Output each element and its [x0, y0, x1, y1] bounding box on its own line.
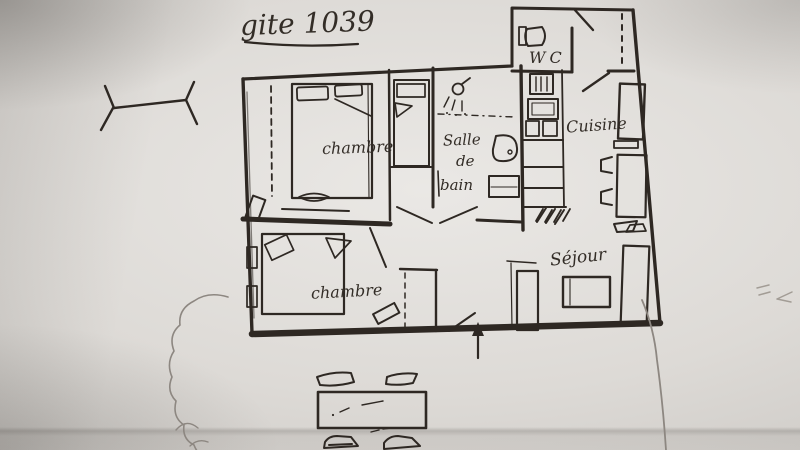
door-swing-icon: [574, 9, 593, 30]
door-swing-icon: [397, 207, 432, 223]
wall-top: [243, 66, 512, 79]
hallway: [397, 207, 521, 223]
bush-icon: [176, 423, 208, 446]
room-chambre-bottom: chambre: [247, 228, 437, 331]
patio-furniture: [317, 373, 426, 450]
door-swing-icon: [440, 207, 477, 223]
wall-bottom: [252, 323, 660, 334]
patio-chair-icon: [384, 436, 420, 449]
patio-chair-icon: [324, 436, 358, 448]
chambre-bottom-label: chambre: [311, 280, 383, 303]
wall-segment: [400, 269, 437, 270]
chair-icon: [601, 189, 612, 205]
branch-mark-icon: [101, 82, 197, 130]
wall-tick: [511, 263, 512, 328]
single-bed-icon: [390, 80, 431, 167]
patio-table-icon: [318, 392, 426, 428]
bain-label-2: de: [456, 152, 475, 170]
floor-plan-photo: gite 1039 WC: [0, 0, 800, 450]
bed-icon: [262, 234, 351, 314]
room-sejour: Séjour: [507, 208, 649, 330]
wall-tick: [438, 171, 439, 196]
sejour-label: Séjour: [549, 245, 608, 271]
wall-segment: [282, 209, 349, 211]
toilet-icon: [519, 27, 545, 46]
wall-chambre-divider: [243, 219, 390, 224]
wardrobe-dashed-icon: [271, 86, 272, 196]
sink-icon: [493, 135, 517, 161]
chambre-top-label: chambre: [322, 137, 394, 158]
entrance: [449, 313, 484, 358]
floor-plan-sketch: gite 1039 WC: [0, 0, 800, 450]
chair-icon: [614, 221, 637, 232]
patio-chair-icon: [386, 373, 417, 384]
kitchen-wall-left: [521, 66, 523, 230]
room-wc: WC: [512, 9, 622, 72]
sofa-icon: [517, 271, 538, 330]
chair-icon: [601, 157, 612, 173]
plan-title-text: gite 1039: [239, 4, 375, 42]
room-chambre-top: chambre: [246, 70, 431, 221]
kitchen-counter-icon: [562, 70, 564, 207]
entry-area: [583, 71, 634, 91]
coffee-table-icon: [563, 277, 610, 307]
plan-title: gite 1039: [239, 4, 375, 45]
shower-icon: [444, 78, 470, 116]
sofa-icon: [621, 246, 650, 325]
stove-icon: [530, 74, 553, 94]
wc-label: WC: [529, 48, 566, 67]
faint-marks: [757, 285, 792, 302]
patio-chair-icon: [317, 373, 354, 386]
washer-icon: [489, 176, 519, 197]
bain-label-1: Salle: [443, 130, 481, 149]
door-leaf-icon: [373, 303, 399, 324]
shower-curtain-line: [438, 114, 515, 117]
bain-label-3: bain: [440, 176, 473, 194]
wall-segment: [477, 220, 521, 222]
title-underline: [245, 42, 358, 46]
door-swing-icon: [370, 228, 386, 267]
door-swing-icon: [583, 73, 609, 91]
kitchen-counter-icon: [523, 99, 566, 207]
outer-walls: [243, 8, 660, 334]
room-salle-de-bain: Salle de bain: [433, 68, 519, 207]
shelf-icon: [614, 141, 638, 148]
kitchen-table-icon: [616, 155, 646, 217]
